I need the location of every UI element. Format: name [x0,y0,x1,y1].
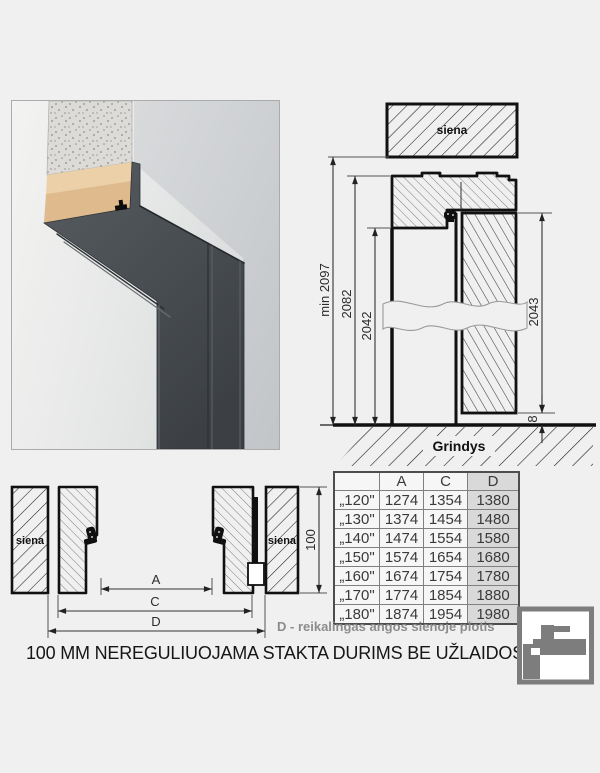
wall-left-label: siena [16,535,45,547]
table-header-row: A C D [334,472,519,491]
value-d: 1380 [468,491,520,510]
value-a: 1374 [380,510,424,529]
table-row: „160"167417541780 [334,567,519,586]
value-c: 1854 [424,586,468,605]
header-blank [334,472,380,491]
dim-c-label: C [150,594,159,609]
value-d: 1880 [468,586,520,605]
dim-d-label: D [151,614,160,629]
size-label: „170" [334,586,380,605]
value-c: 1454 [424,510,468,529]
page-title: 100 MM NEREGULIUOJAMA STAKTA DURIMS BE U… [26,643,524,664]
value-d: 1480 [468,510,520,529]
size-label: „160" [334,567,380,586]
table-row: „140"147415541580 [334,529,519,548]
value-a: 1474 [380,529,424,548]
wall-cross-section-concrete [47,101,132,175]
value-d: 1680 [468,548,520,567]
value-c: 1354 [424,491,468,510]
size-label: „150" [334,548,380,567]
value-c: 1754 [424,567,468,586]
value-d: 1580 [468,529,520,548]
dim-opening-height: 2042 [359,312,374,341]
brand-logo-icon [517,606,594,685]
dim-frame-depth: 100 [303,529,318,551]
header-a: A [380,472,424,491]
value-c: 1654 [424,548,468,567]
fixing-box [248,563,264,585]
table-row: „170"177418541880 [334,586,519,605]
size-label: „120" [334,491,380,510]
size-label: „130" [334,510,380,529]
header-d: D [468,472,520,491]
wall-label: siena [437,123,468,137]
d-note: D - reikalingas angos sienoje plotis [277,619,494,634]
value-a: 1774 [380,586,424,605]
hinge-bar [253,497,258,563]
door-frame-spec-sheet: Grindys siena min 2097 2082 2042 2043 8 [0,0,600,773]
floor-label: Grindys [433,438,486,454]
wall-right-label: siena [268,535,297,547]
value-d: 1780 [468,567,520,586]
value-a: 1274 [380,491,424,510]
dimension-table: A C D „120"127413541380 „130"13741454148… [333,471,520,625]
dim-floor-gap: 8 [525,415,540,422]
table-row: „150"157416541680 [334,548,519,567]
size-label: „140" [334,529,380,548]
dim-frame-height: 2082 [339,290,354,319]
table-row: „130"137414541480 [334,510,519,529]
frame-corner-photo [11,100,280,450]
dim-a-label: A [152,572,161,587]
break-lines [383,301,527,331]
vertical-section-drawing: Grindys siena min 2097 2082 2042 2043 8 [315,98,600,472]
dim-min-height: min 2097 [317,263,332,316]
value-a: 1574 [380,548,424,567]
dim-door-height: 2043 [526,298,541,327]
value-a: 1674 [380,567,424,586]
header-c: C [424,472,468,491]
value-c: 1554 [424,529,468,548]
table-row: „120"127413541380 [334,491,519,510]
